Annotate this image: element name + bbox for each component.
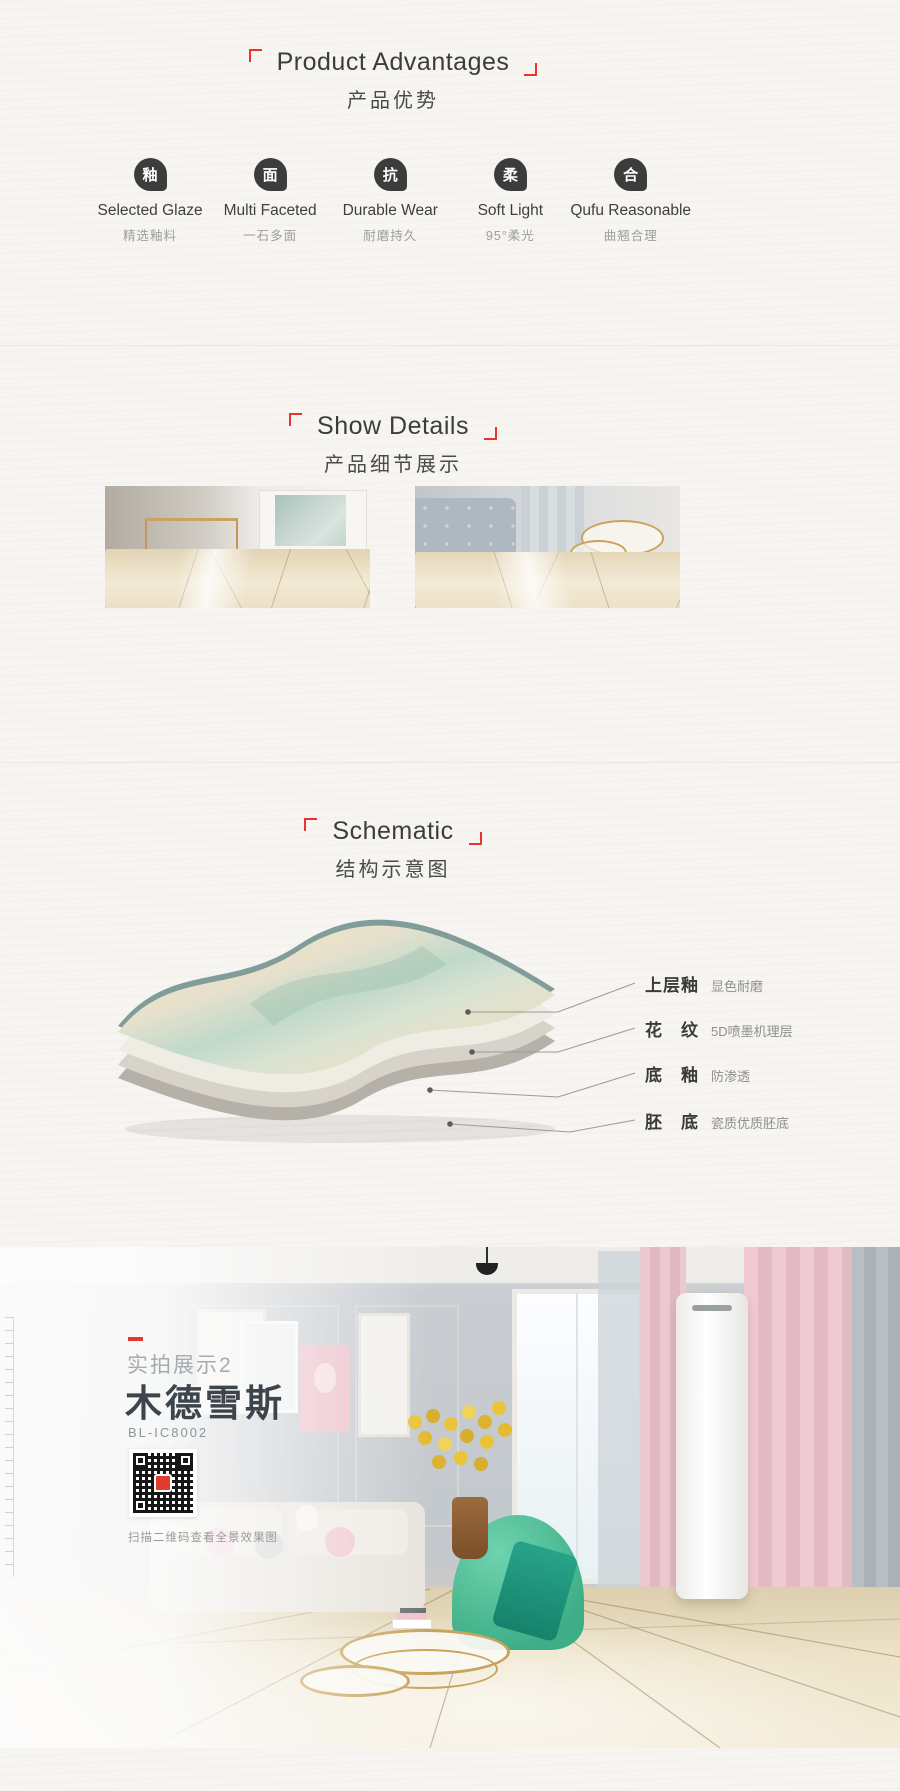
bracket-top-left-icon <box>249 49 262 62</box>
advantage-label-zh: 曲翘合理 <box>570 225 691 244</box>
schematic-header: Schematic 结构示意图 <box>0 817 786 882</box>
gold-console-table <box>145 518 238 550</box>
surface-droplet-icon: 面 <box>254 158 287 191</box>
advantage-item-faceted: 面 Multi Faceted 一石多面 <box>210 158 330 244</box>
advantages-title: Product Advantages <box>249 48 538 77</box>
red-dash-icon <box>128 1337 143 1341</box>
wear-droplet-icon: 抗 <box>374 158 407 191</box>
details-header: Show Details 产品细节展示 <box>0 412 786 477</box>
showcase-room-photo: 实拍展示2 木德雪斯 BL-IC8002 扫描二维码查看全景效果图 <box>0 1247 900 1748</box>
schematic-title-en: Schematic <box>332 817 453 846</box>
layer-name: 胚 底 <box>645 1108 701 1133</box>
details-title-zh: 产品细节展示 <box>0 448 786 477</box>
advantages-header: Product Advantages 产品优势 <box>0 48 786 113</box>
fit-droplet-icon: 合 <box>614 158 647 191</box>
marble-floor <box>415 552 680 608</box>
detail-photo-console-table <box>105 486 370 608</box>
detail-photo-sofa-tables <box>415 486 680 608</box>
flower-vase <box>452 1497 488 1559</box>
advantage-label-en: Qufu Reasonable <box>570 202 691 220</box>
layer-label-base-glaze: 底 釉 防渗透 <box>645 1061 750 1085</box>
qr-finder-icon <box>133 1498 148 1513</box>
advantage-label-zh: 一石多面 <box>210 225 330 244</box>
tile-layers-diagram <box>100 882 660 1177</box>
bracket-top-left-icon <box>304 818 317 831</box>
layer-desc: 显色耐磨 <box>711 976 763 995</box>
layer-name: 花 纹 <box>645 1016 701 1041</box>
lamp-pole-detail <box>5 1317 14 1577</box>
section-divider <box>0 762 900 763</box>
layer-label-top-glaze: 上层釉 显色耐磨 <box>645 971 763 995</box>
product-detail-page: Product Advantages 产品优势 釉 Selected Glaze… <box>0 0 900 1791</box>
icon-char: 面 <box>263 164 278 185</box>
tufted-sofa <box>415 498 516 557</box>
advantage-item-wear: 抗 Durable Wear 耐磨持久 <box>330 158 450 244</box>
icon-char: 柔 <box>503 164 518 185</box>
qr-caption: 扫描二维码查看全景效果图 <box>128 1529 278 1545</box>
product-model: BL-IC8002 <box>128 1425 208 1440</box>
layer-desc: 防渗透 <box>711 1066 750 1085</box>
section-divider <box>0 345 900 346</box>
layer-label-pattern: 花 纹 5D喷墨机理层 <box>645 1016 793 1040</box>
layer-name: 底 釉 <box>645 1061 701 1086</box>
qr-code <box>129 1449 197 1517</box>
white-fade-overlay <box>0 1247 430 1748</box>
bracket-bottom-right-icon <box>524 63 537 76</box>
icon-char: 合 <box>623 164 638 185</box>
advantage-label-en: Soft Light <box>450 202 570 220</box>
ac-vent <box>692 1305 732 1311</box>
advantage-label-en: Multi Faceted <box>210 202 330 220</box>
advantage-label-zh: 精选釉料 <box>90 225 210 244</box>
schematic-title: Schematic <box>304 817 481 846</box>
advantage-item-softlight: 柔 Soft Light 95°柔光 <box>450 158 570 244</box>
details-title-en: Show Details <box>317 412 469 441</box>
advantages-row: 釉 Selected Glaze 精选釉料 面 Multi Faceted 一石… <box>90 158 691 244</box>
advantages-title-en: Product Advantages <box>277 48 510 77</box>
advantage-item-flatness: 合 Qufu Reasonable 曲翘合理 <box>570 158 691 244</box>
advantage-label-zh: 耐磨持久 <box>330 225 450 244</box>
advantage-label-en: Selected Glaze <box>90 202 210 220</box>
layer-name: 上层釉 <box>645 971 701 996</box>
advantage-item-glaze: 釉 Selected Glaze 精选釉料 <box>90 158 210 244</box>
bracket-top-left-icon <box>289 413 302 426</box>
advantage-label-zh: 95°柔光 <box>450 225 570 244</box>
qr-finder-icon <box>178 1453 193 1468</box>
layer-label-body: 胚 底 瓷质优质胚底 <box>645 1108 789 1132</box>
door-art-panel <box>275 495 347 546</box>
marble-floor <box>105 549 370 608</box>
qr-finder-icon <box>133 1453 148 1468</box>
product-name: 木德雪斯 <box>125 1373 285 1427</box>
icon-char: 釉 <box>143 164 158 185</box>
bracket-bottom-right-icon <box>484 427 497 440</box>
glaze-droplet-icon: 釉 <box>134 158 167 191</box>
soft-droplet-icon: 柔 <box>494 158 527 191</box>
advantage-label-en: Durable Wear <box>330 202 450 220</box>
advantages-title-zh: 产品优势 <box>0 84 786 113</box>
icon-char: 抗 <box>383 164 398 185</box>
details-title: Show Details <box>289 412 497 441</box>
bracket-bottom-right-icon <box>469 832 482 845</box>
qr-center-logo-icon <box>154 1474 172 1492</box>
layer-desc: 5D喷墨机理层 <box>711 1021 793 1040</box>
schematic-title-zh: 结构示意图 <box>0 853 786 882</box>
air-conditioner <box>676 1293 748 1599</box>
layer-desc: 瓷质优质胚底 <box>711 1113 789 1132</box>
